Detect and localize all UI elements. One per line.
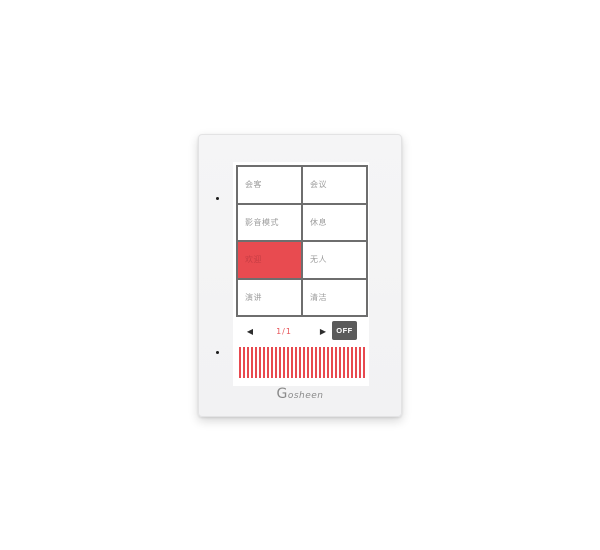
scene-button[interactable]: 演讲 [238,280,301,316]
led-indicator-dot [216,197,219,200]
control-panel-device: 会客 会议 影音模式 休息 欢迎 无人 演讲 [198,134,402,417]
stripe-pattern [239,347,366,378]
scene-button[interactable]: 清洁 [303,280,366,316]
scene-button-grid: 会客 会议 影音模式 休息 欢迎 无人 演讲 [236,165,368,317]
page-background: 会客 会议 影音模式 休息 欢迎 无人 演讲 [0,0,600,550]
scene-button[interactable]: 休息 [303,205,366,241]
scene-button-active[interactable]: 欢迎 [238,242,301,278]
prev-page-icon: ◀ [247,327,253,336]
scene-button-label: 无人 [310,254,327,265]
scene-button-label: 会客 [245,179,262,190]
page-indicator: 1/1 [267,316,301,346]
touch-screen: 会客 会议 影音模式 休息 欢迎 无人 演讲 [233,162,369,386]
scene-button-label: 欢迎 [245,254,262,265]
pagination-bar: ◀ 1/1 ▶ OFF [233,316,369,346]
led-indicator-dot [216,351,219,354]
scene-button-label: 影音模式 [245,217,279,228]
scene-button[interactable]: 会议 [303,167,366,203]
scene-button[interactable]: 影音模式 [238,205,301,241]
off-button[interactable]: OFF [332,321,357,340]
scene-button-label: 演讲 [245,292,262,303]
prev-page-button[interactable]: ◀ [242,316,258,346]
next-page-button[interactable]: ▶ [315,316,331,346]
brand-logo: Gosheen [199,386,401,402]
next-page-icon: ▶ [320,327,326,336]
scene-button-label: 清洁 [310,292,327,303]
scene-button-label: 会议 [310,179,327,190]
scene-button[interactable]: 无人 [303,242,366,278]
scene-button[interactable]: 会客 [238,167,301,203]
scene-button-label: 休息 [310,217,327,228]
